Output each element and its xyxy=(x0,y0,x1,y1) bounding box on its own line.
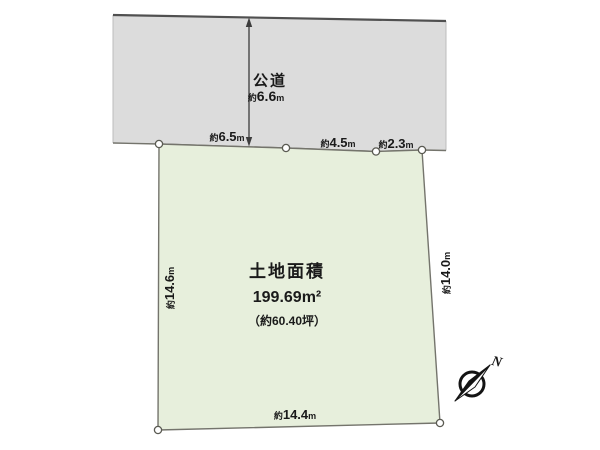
plot-info-block: 土地面積 199.69m² （約60.40坪） xyxy=(172,257,402,329)
dimension-top-left: 約6.5m xyxy=(209,129,244,145)
unit-suffix: m xyxy=(308,411,316,421)
vertex-marker xyxy=(436,419,443,426)
unit-suffix: m xyxy=(237,133,245,143)
dimension-value: 6.6 xyxy=(257,88,276,104)
road-width-label: 約6.6m xyxy=(248,89,285,105)
dimension-value: 14.4 xyxy=(283,407,308,422)
vertex-marker xyxy=(282,144,289,151)
site-plan-diagram: N 公道 約6.6m 約6.5m 約4.5m 約2.3m 約14.6m 約14.… xyxy=(0,0,600,450)
vertex-marker xyxy=(154,426,161,433)
unit-suffix: m xyxy=(348,139,356,149)
dimension-value: 14.0 xyxy=(438,260,453,285)
dimension-right: 約14.0m xyxy=(438,252,454,294)
dimension-top-right: 約2.3m xyxy=(378,136,413,152)
approx-prefix: 約 xyxy=(378,140,387,150)
site-plan-drawing: N xyxy=(0,0,600,450)
unit-suffix: m xyxy=(442,252,452,260)
dimension-value: 2.3 xyxy=(387,136,405,151)
plot-area-tsubo: （約60.40坪） xyxy=(172,312,402,329)
approx-prefix: 約 xyxy=(274,411,283,421)
dimension-value: 4.5 xyxy=(329,135,347,150)
plot-area-sqm: 199.69m² xyxy=(172,289,402,307)
approx-prefix: 約 xyxy=(320,139,329,149)
dimension-bottom: 約14.4m xyxy=(274,407,316,423)
compass-north-label: N xyxy=(489,354,504,371)
compass-icon: N xyxy=(455,354,504,401)
unit-suffix: m xyxy=(406,140,414,150)
approx-prefix: 約 xyxy=(248,93,257,103)
vertex-marker xyxy=(155,140,162,147)
approx-prefix: 約 xyxy=(209,133,218,143)
vertex-marker xyxy=(418,146,425,153)
plot-area-title: 土地面積 xyxy=(172,257,402,282)
road-label: 公道 xyxy=(253,74,287,89)
unit-suffix: m xyxy=(276,93,284,103)
dimension-top-middle: 約4.5m xyxy=(320,135,355,151)
approx-prefix: 約 xyxy=(442,285,452,294)
dimension-value: 6.5 xyxy=(218,129,236,144)
